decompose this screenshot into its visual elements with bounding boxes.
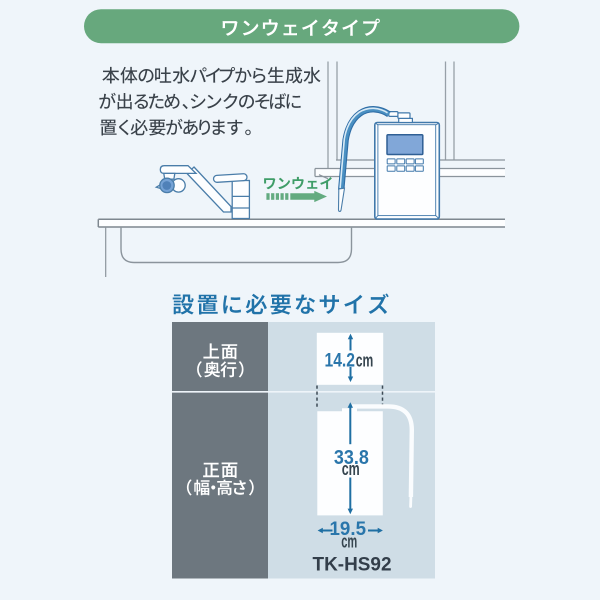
svg-text:TK-HS92: TK-HS92 (313, 553, 392, 575)
svg-text:14.2: 14.2 (325, 351, 356, 372)
svg-text:cm: cm (341, 531, 357, 551)
svg-text:cm: cm (342, 459, 360, 479)
svg-text:cm: cm (356, 351, 374, 371)
